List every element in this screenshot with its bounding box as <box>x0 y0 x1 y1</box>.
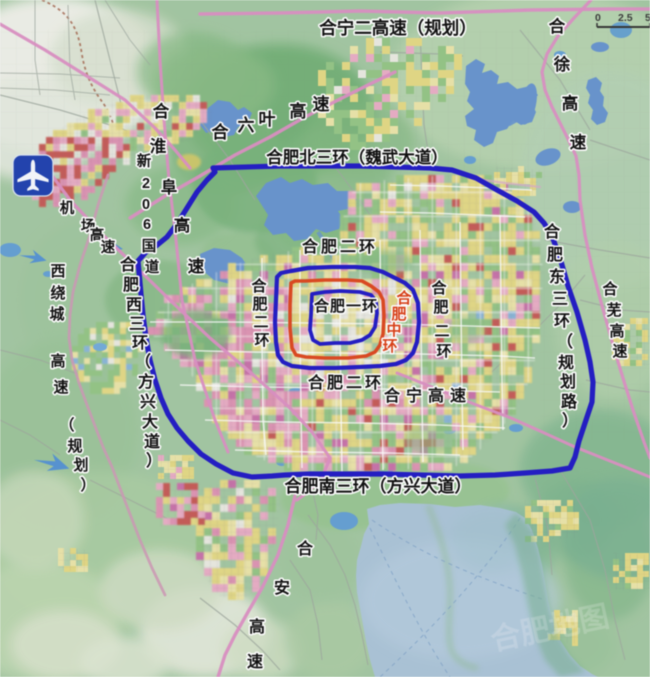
svg-text:合肥南三环（方兴大道）: 合肥南三环（方兴大道） <box>285 476 472 496</box>
svg-text:高: 高 <box>174 215 191 235</box>
svg-text:道: 道 <box>144 432 160 451</box>
svg-text:速: 速 <box>247 653 263 671</box>
svg-text:合肥一环: 合肥一环 <box>313 297 378 315</box>
svg-text:合宁二高速（规划）: 合宁二高速（规划） <box>319 18 477 38</box>
svg-text:合: 合 <box>250 277 267 295</box>
svg-text:二: 二 <box>434 323 449 340</box>
svg-text:合: 合 <box>395 289 412 307</box>
svg-text:速: 速 <box>612 342 627 360</box>
svg-text:）: ） <box>562 412 578 430</box>
svg-text:（: （ <box>59 416 74 434</box>
svg-text:0: 0 <box>595 12 601 24</box>
svg-text:合宁高速: 合宁高速 <box>384 386 472 405</box>
svg-text:合肥北三环（魏武大道）: 合肥北三环（魏武大道） <box>266 147 448 167</box>
svg-text:芜: 芜 <box>606 301 621 319</box>
svg-text:环: 环 <box>132 334 148 352</box>
svg-text:速: 速 <box>570 132 587 152</box>
svg-text:兴: 兴 <box>140 393 156 411</box>
svg-text:新: 新 <box>137 152 152 170</box>
svg-text:叶: 叶 <box>259 110 276 129</box>
svg-text:合肥二环: 合肥二环 <box>308 373 384 392</box>
svg-text:合: 合 <box>120 255 137 274</box>
svg-text:环: 环 <box>554 312 570 330</box>
svg-text:（: （ <box>557 333 573 351</box>
svg-text:合: 合 <box>430 279 447 297</box>
svg-text:肥: 肥 <box>123 276 139 294</box>
svg-text:三: 三 <box>129 316 145 333</box>
svg-text:中: 中 <box>386 321 401 339</box>
svg-text:六: 六 <box>238 115 255 135</box>
svg-text:（: （ <box>135 353 151 371</box>
svg-text:合: 合 <box>544 222 561 241</box>
svg-text:肥: 肥 <box>433 299 448 316</box>
svg-text:国: 国 <box>142 238 157 255</box>
svg-text:速: 速 <box>101 238 116 256</box>
svg-text:高: 高 <box>290 101 307 121</box>
svg-text:二: 二 <box>253 314 268 331</box>
svg-text:）: ） <box>146 452 162 470</box>
svg-text:方: 方 <box>138 372 154 391</box>
svg-text:高: 高 <box>609 322 624 340</box>
svg-text:环: 环 <box>254 332 269 349</box>
svg-text:徐: 徐 <box>553 54 571 74</box>
svg-text:大: 大 <box>142 412 158 431</box>
svg-text:肥: 肥 <box>547 246 563 264</box>
svg-text:划: 划 <box>73 456 88 474</box>
svg-text:）: ） <box>80 476 95 494</box>
svg-text:三: 三 <box>552 291 568 308</box>
svg-text:划: 划 <box>560 372 576 391</box>
svg-text:安: 安 <box>274 578 290 597</box>
svg-text:合: 合 <box>549 16 566 36</box>
svg-text:阜: 阜 <box>161 177 178 197</box>
svg-text:2: 2 <box>142 176 150 192</box>
svg-text:高: 高 <box>249 617 265 636</box>
svg-text:速: 速 <box>53 378 68 396</box>
svg-text:淮: 淮 <box>150 137 167 156</box>
svg-text:合肥二环: 合肥二环 <box>302 237 378 256</box>
svg-text:规: 规 <box>67 438 82 455</box>
svg-text:肥: 肥 <box>252 296 267 313</box>
svg-text:肥: 肥 <box>391 306 406 323</box>
svg-text:速: 速 <box>313 94 330 114</box>
svg-text:环: 环 <box>382 338 397 355</box>
svg-text:规: 规 <box>558 354 574 372</box>
svg-text:路: 路 <box>561 392 578 411</box>
svg-text:合: 合 <box>601 280 618 298</box>
svg-text:速: 速 <box>188 256 205 276</box>
svg-text:西: 西 <box>50 263 65 280</box>
svg-text:西: 西 <box>126 296 142 314</box>
svg-text:5: 5 <box>645 12 650 24</box>
svg-text:道: 道 <box>145 258 160 276</box>
svg-text:城: 城 <box>49 305 64 323</box>
svg-text:东: 东 <box>549 267 565 286</box>
svg-text:6: 6 <box>143 217 151 233</box>
svg-text:环: 环 <box>436 343 451 360</box>
svg-text:高: 高 <box>50 352 65 370</box>
svg-text:合: 合 <box>153 101 170 121</box>
svg-text:合: 合 <box>212 122 230 142</box>
svg-text:0: 0 <box>142 197 150 213</box>
svg-text:2.5: 2.5 <box>618 12 633 24</box>
svg-text:机: 机 <box>60 199 75 217</box>
svg-text:合: 合 <box>297 539 314 558</box>
svg-text:绕: 绕 <box>50 284 65 302</box>
svg-text:高: 高 <box>562 93 579 113</box>
